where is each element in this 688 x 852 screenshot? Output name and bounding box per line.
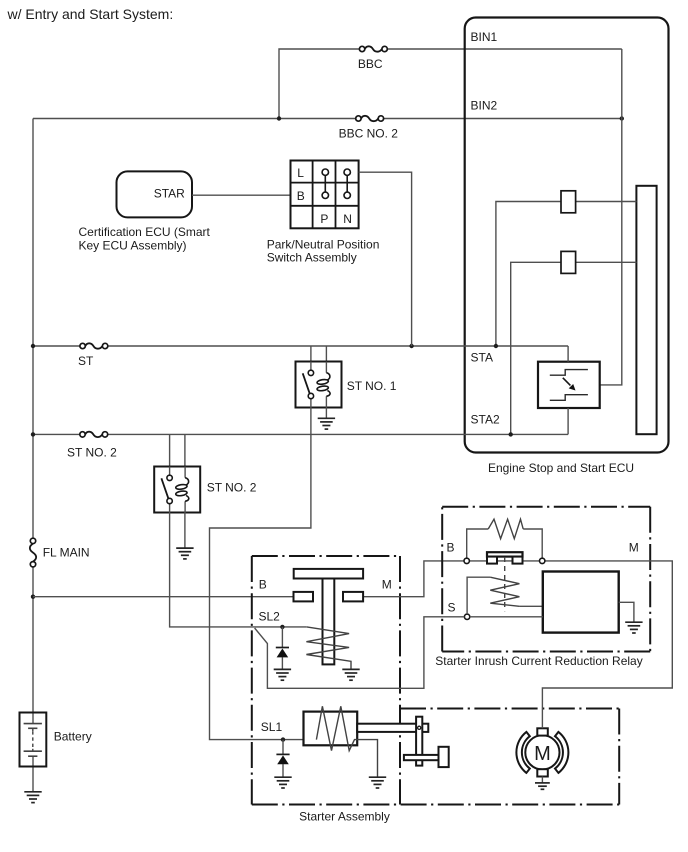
svg-text:ST: ST bbox=[78, 354, 94, 368]
svg-text:w/ Entry and Start System:: w/ Entry and Start System: bbox=[7, 6, 174, 22]
svg-text:Park/Neutral Position: Park/Neutral Position bbox=[267, 237, 380, 251]
svg-text:Starter Assembly: Starter Assembly bbox=[299, 810, 390, 824]
svg-text:S: S bbox=[448, 601, 456, 615]
svg-text:SL2: SL2 bbox=[259, 609, 281, 623]
svg-text:BIN1: BIN1 bbox=[471, 30, 498, 44]
svg-text:L: L bbox=[297, 166, 304, 180]
svg-text:STA: STA bbox=[471, 351, 493, 365]
svg-text:M: M bbox=[382, 578, 392, 592]
svg-text:ST NO. 2: ST NO. 2 bbox=[207, 480, 257, 494]
svg-text:Starter Inrush Current Reducti: Starter Inrush Current Reduction Relay bbox=[435, 654, 642, 668]
svg-text:BBC NO. 2: BBC NO. 2 bbox=[339, 126, 399, 140]
svg-text:STA2: STA2 bbox=[471, 413, 500, 427]
svg-text:SL1: SL1 bbox=[261, 720, 283, 734]
svg-text:Battery: Battery bbox=[54, 729, 92, 743]
svg-text:BBC: BBC bbox=[358, 57, 383, 71]
svg-text:ST NO. 1: ST NO. 1 bbox=[347, 379, 397, 393]
svg-text:B: B bbox=[297, 189, 305, 203]
svg-text:P: P bbox=[320, 212, 328, 226]
svg-text:ST NO. 2: ST NO. 2 bbox=[67, 445, 117, 459]
svg-text:Key ECU Assembly): Key ECU Assembly) bbox=[79, 239, 187, 253]
svg-text:B: B bbox=[259, 578, 267, 592]
svg-text:B: B bbox=[447, 541, 455, 555]
svg-text:M: M bbox=[534, 743, 551, 765]
svg-text:STAR: STAR bbox=[154, 186, 185, 200]
svg-text:BIN2: BIN2 bbox=[471, 99, 498, 113]
svg-text:M: M bbox=[629, 541, 639, 555]
svg-text:Certification ECU (Smart: Certification ECU (Smart bbox=[79, 225, 211, 239]
svg-text:Switch Assembly: Switch Assembly bbox=[267, 251, 357, 265]
svg-text:FL MAIN: FL MAIN bbox=[43, 546, 90, 560]
svg-text:N: N bbox=[343, 212, 352, 226]
svg-text:Engine Stop and Start ECU: Engine Stop and Start ECU bbox=[488, 461, 634, 475]
